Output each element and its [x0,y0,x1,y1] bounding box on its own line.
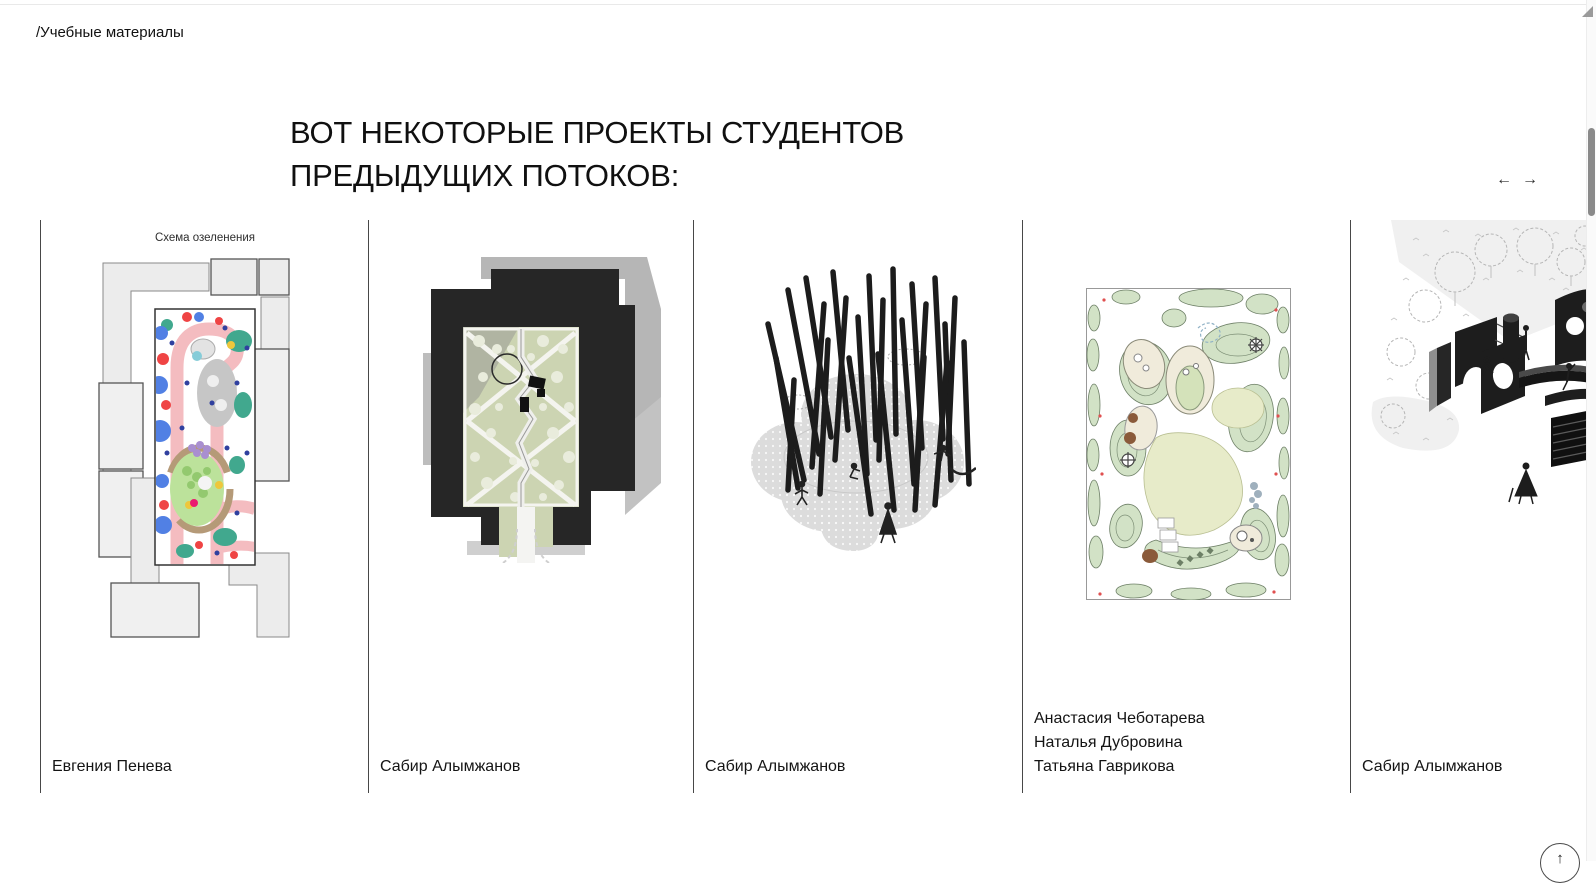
plan-caption: Схема озеленения [41,232,369,244]
scrollbar-track[interactable] [1586,0,1596,861]
scrollbar-thumb[interactable] [1588,128,1595,216]
arrow-up-icon: ↑ [1556,851,1564,866]
project-card-2: Сабир Алымжанов [368,220,694,793]
project-authors: Сабир Алымжанов [705,755,845,779]
project-authors: Сабир Алымжанов [1362,755,1502,779]
project-authors: Анастасия Чеботарева Наталья Дубровина Т… [1034,707,1205,779]
header-divider [0,4,1596,5]
project-image-landscape-plan[interactable] [97,253,295,641]
author-name: Сабир Алымжанов [705,755,845,779]
breadcrumb[interactable]: /Учебные материалы [36,24,184,41]
author-name: Сабир Алымжанов [1362,755,1502,779]
projects-carousel: Схема озеленения [0,220,1596,793]
project-card-5: Сабир Алымжанов [1350,220,1596,793]
author-name: Татьяна Гаврикова [1034,755,1205,779]
project-image-poles-playground[interactable] [736,262,976,555]
project-card-1: Схема озеленения [40,220,369,793]
project-card-3: Сабир Алымжанов [693,220,1023,793]
author-name: Евгения Пенева [52,755,172,779]
author-name: Сабир Алымжанов [380,755,520,779]
page-title-line1: ВОТ НЕКОТОРЫЕ ПРОЕКТЫ СТУДЕНТОВ [290,115,904,150]
project-image-sculpture-park-sketch[interactable] [1363,220,1596,510]
scroll-to-top-button[interactable]: ↑ [1540,843,1580,883]
page-title-line2: ПРЕДЫДУЩИХ ПОТОКОВ: [290,158,679,193]
carousel-prev-arrow-icon[interactable]: ← [1496,168,1512,192]
carousel-nav: ← → [1496,168,1538,192]
project-authors: Сабир Алымжанов [380,755,520,779]
author-name: Анастасия Чеботарева [1034,707,1205,731]
page-title: ВОТ НЕКОТОРЫЕ ПРОЕКТЫ СТУДЕНТОВПРЕДЫДУЩИ… [290,111,904,197]
project-image-green-masterplan[interactable] [1086,288,1291,600]
carousel-next-arrow-icon[interactable]: → [1522,168,1538,192]
project-authors: Евгения Пенева [52,755,172,779]
project-image-courtyard-aerial[interactable] [423,257,663,563]
corner-resize-icon [1582,6,1593,17]
project-card-4: Анастасия Чеботарева Наталья Дубровина Т… [1022,220,1351,793]
author-name: Наталья Дубровина [1034,731,1205,755]
